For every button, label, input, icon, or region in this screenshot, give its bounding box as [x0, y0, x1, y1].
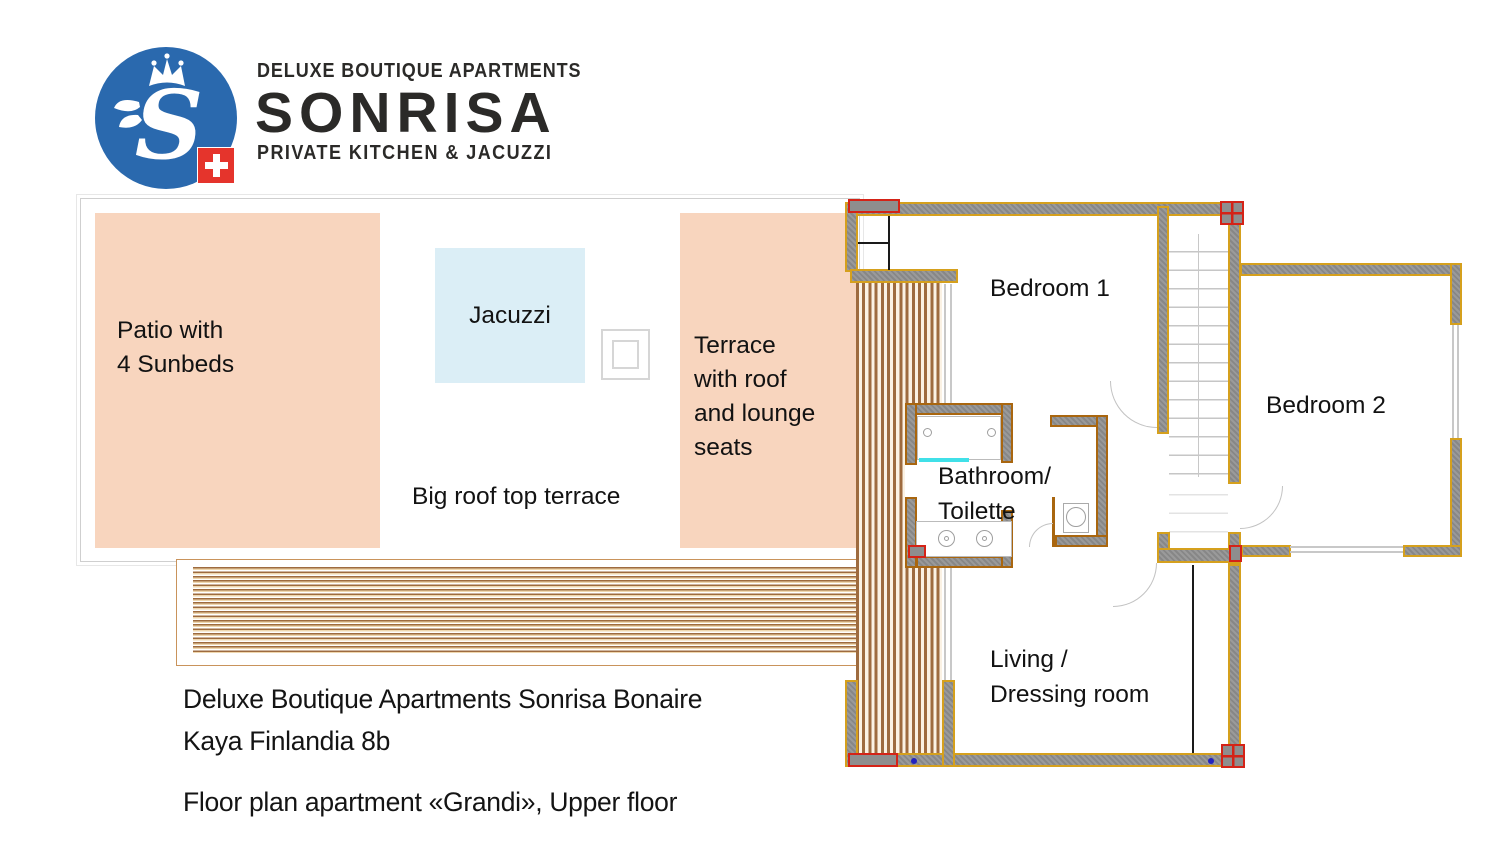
wall-right-lower — [1228, 564, 1241, 767]
sink-drain — [982, 536, 987, 541]
door-arc-living — [1113, 563, 1157, 607]
partition-line — [1192, 565, 1194, 753]
wall-bedroom2-bottom-left — [1241, 545, 1291, 557]
living-label: Living / Dressing room — [990, 642, 1149, 712]
address-line2: Kaya Finlandia 8b — [183, 726, 390, 757]
toilet-bowl — [1066, 507, 1086, 527]
bathtub-faucet — [923, 428, 932, 437]
stair-rail-line — [1198, 234, 1199, 477]
wall-right-upper — [1228, 202, 1241, 484]
terrace-table — [601, 329, 650, 380]
wall-wc-right — [1096, 415, 1108, 547]
wall-bathroom-right-upper — [1001, 403, 1013, 463]
wall-bedroom2-right-upper — [1450, 263, 1462, 325]
marker-top-right — [1220, 201, 1244, 225]
window-line — [1457, 325, 1459, 438]
marker-bottom-left — [848, 753, 898, 767]
floor-plan-page: { "logo": { "tagline_top": "DELUXE BOUTI… — [0, 0, 1500, 844]
patio-label: Patio with 4 Sunbeds — [117, 314, 234, 382]
wardrobe-line — [858, 242, 888, 244]
wall-top — [845, 202, 1241, 216]
marker-top-left — [848, 199, 900, 213]
window-line — [1452, 325, 1454, 438]
jacuzzi-label: Jacuzzi — [469, 299, 551, 333]
wall-bedroom2-right-lower — [1450, 438, 1462, 557]
bathroom-label: Bathroom/ Toilette — [938, 459, 1051, 529]
wall-bedroom2-bottom-right — [1403, 545, 1462, 557]
window-line — [1290, 551, 1403, 553]
wood-deck-horizontal — [193, 567, 861, 653]
marker-bedroom2-door — [1229, 545, 1242, 562]
survey-dot — [1208, 758, 1214, 764]
swiss-flag-icon — [198, 148, 234, 183]
big-terrace-label: Big roof top terrace — [412, 480, 620, 514]
covered-terrace-label: Terrace with roof and lounge seats — [694, 329, 815, 465]
wall-stair-left — [1157, 206, 1169, 434]
wall-living-left-stub — [942, 680, 955, 767]
door-arc-bedroom1 — [1110, 381, 1157, 428]
wall-bottom — [845, 753, 1241, 767]
survey-dot — [911, 758, 917, 764]
wall-bathroom-left-upper — [905, 403, 917, 465]
wardrobe-line — [888, 216, 890, 270]
address-line1: Deluxe Boutique Apartments Sonrisa Bonai… — [183, 684, 702, 715]
wall-bedroom2-top — [1240, 263, 1462, 276]
bedroom2-label: Bedroom 2 — [1266, 389, 1386, 423]
door-arc-bedroom2 — [1240, 486, 1283, 529]
bedroom1-label: Bedroom 1 — [990, 272, 1110, 306]
plan-caption: Floor plan apartment «Grandi», Upper flo… — [183, 787, 677, 818]
logo-brand-name: SONRISA — [255, 80, 557, 146]
staircase-lower — [1169, 477, 1228, 545]
wall-bathroom-bottom — [916, 556, 1013, 568]
wall-bathroom-top — [905, 403, 1013, 415]
bathtub — [917, 416, 1001, 460]
logo-monogram: S — [135, 70, 204, 181]
terrace-table-inner — [612, 340, 639, 369]
marker-bottom-right — [1221, 744, 1245, 768]
jacuzzi-area: Jacuzzi — [435, 248, 585, 383]
logo-tagline-bottom: PRIVATE KITCHEN & JACUZZI — [257, 142, 552, 165]
wall-alcove-bottom — [850, 269, 958, 283]
bathtub-faucet — [987, 428, 996, 437]
window-line — [1290, 546, 1403, 548]
marker-bathroom — [908, 545, 926, 558]
wall-wc-bottom — [1055, 535, 1108, 547]
sink-drain — [944, 536, 949, 541]
wall-hall-stub — [1157, 532, 1170, 550]
